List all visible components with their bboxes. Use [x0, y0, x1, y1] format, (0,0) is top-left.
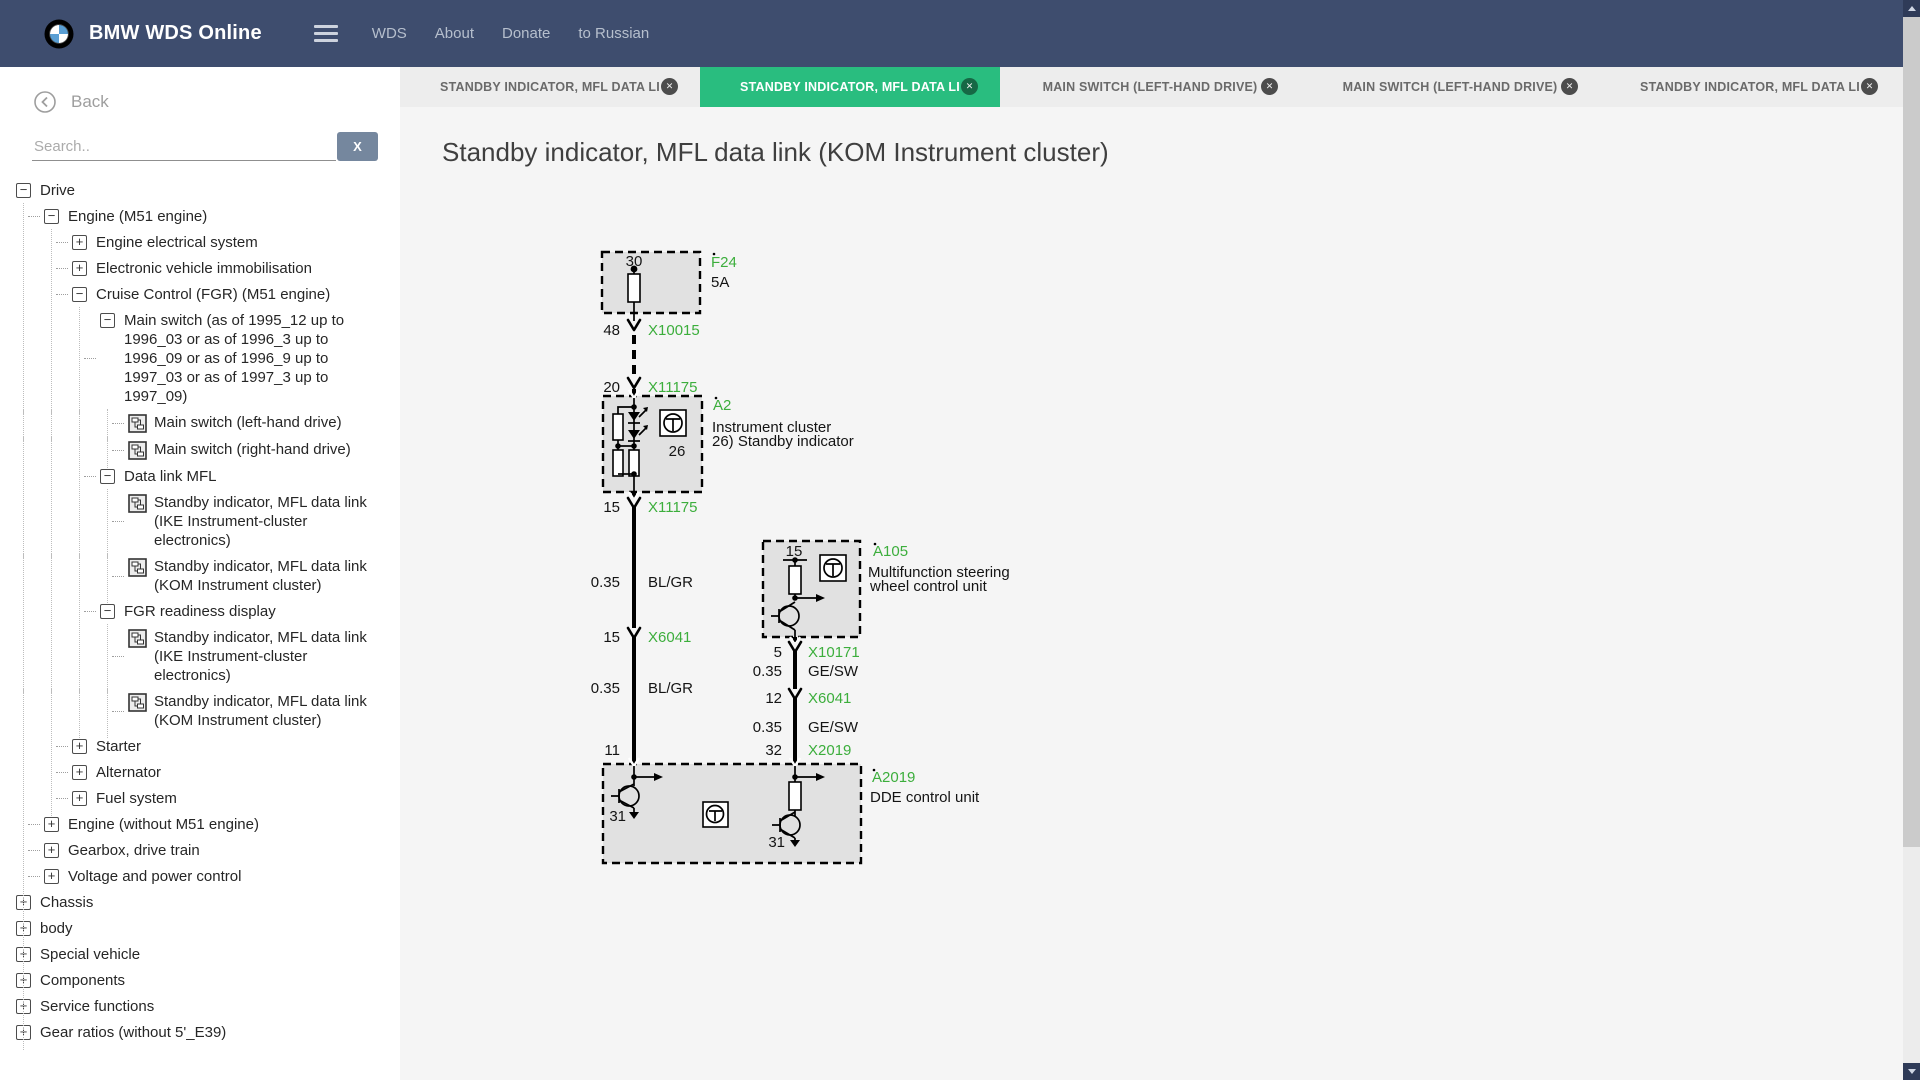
back-button[interactable]: Back: [34, 91, 400, 113]
pin-32-label: 32: [765, 742, 782, 759]
a2-name-line2: 26) Standby indicator: [712, 433, 854, 450]
pin-11-label: 11: [604, 742, 620, 759]
tree-guide-line: [23, 489, 24, 558]
a2019-id-label[interactable]: A2019: [872, 769, 915, 786]
nav-link-wds[interactable]: WDS: [372, 25, 407, 42]
pin-15-left-label: 15: [603, 499, 620, 516]
tree-item-label[interactable]: Fuel system: [96, 789, 400, 808]
nav-link-to-russian[interactable]: to Russian: [578, 25, 649, 42]
pin-5-label: 5: [774, 644, 782, 661]
tab-label: MAIN SWITCH (LEFT-HAND DRIVE): [1343, 80, 1558, 94]
wire1b-color-label: BL/GR: [648, 680, 693, 697]
tree-item-label[interactable]: Special vehicle: [40, 945, 400, 964]
tab[interactable]: MAIN SWITCH (LEFT-HAND DRIVE)✕: [1300, 67, 1600, 107]
tree-dots: [112, 521, 124, 522]
tree-item-label[interactable]: body: [40, 919, 400, 938]
tab-close-icon[interactable]: ✕: [1261, 78, 1278, 95]
sidebar: Back X −Drive−Engine (M51 engine)+Engine…: [0, 67, 400, 1080]
tree-guide-line: [107, 553, 108, 603]
wire1a-gauge-label: 0.35: [591, 574, 620, 591]
tree-item[interactable]: Main switch (right-hand drive): [0, 440, 400, 460]
bmw-logo-icon: [44, 19, 74, 49]
tree-guide-line: [79, 688, 80, 738]
connector-x10015-icon: [628, 320, 640, 330]
tree-item[interactable]: +Fuel system: [0, 789, 400, 808]
a2-id-label[interactable]: A2: [713, 397, 731, 414]
tree-dots: [56, 746, 68, 747]
wire2b-gauge-label: 0.35: [753, 719, 782, 736]
tree-item[interactable]: +Special vehicle: [0, 945, 400, 964]
connector-x6041-right-label[interactable]: X6041: [808, 690, 851, 707]
tree-dots: [28, 216, 40, 217]
tree-item[interactable]: +Components: [0, 971, 400, 990]
a2019-box[interactable]: [603, 764, 861, 863]
collapse-toggle-icon[interactable]: −: [100, 469, 115, 484]
tree-item-label[interactable]: Standby indicator, MFL data link (IKE In…: [154, 628, 400, 685]
tree-guide-line: [51, 489, 52, 558]
collapse-toggle-icon[interactable]: −: [16, 183, 31, 198]
top-navbar: BMW WDS Online WDSAboutDonateto Russian: [0, 0, 1920, 67]
a105-id-label[interactable]: A105: [873, 543, 908, 560]
a2019-name-label: DDE control unit: [870, 789, 980, 806]
tree-guide-line: [23, 553, 24, 603]
diagram-icon: [128, 629, 147, 648]
tree-item-label[interactable]: Standby indicator, MFL data link (KOM In…: [154, 692, 400, 730]
sidebar-tree: −Drive−Engine (M51 engine)+Engine electr…: [0, 181, 400, 1042]
connector-x10015-label[interactable]: X10015: [648, 322, 700, 339]
tree-guide-line: [23, 1019, 24, 1050]
search-input[interactable]: [32, 133, 336, 161]
tree-item[interactable]: Standby indicator, MFL data link (KOM In…: [0, 557, 400, 595]
pin-20-label: 20: [603, 379, 620, 396]
tree-dots: [56, 268, 68, 269]
tree-item-label[interactable]: Engine (without M51 engine): [68, 815, 400, 834]
tree-item[interactable]: +Service functions: [0, 997, 400, 1016]
tree-guide-line: [51, 307, 52, 414]
fuse-symbol: [628, 274, 640, 302]
vertical-scrollbar[interactable]: [1903, 0, 1920, 1080]
connector-x2019-label[interactable]: X2019: [808, 742, 851, 759]
tree-guide-line: [23, 307, 24, 414]
tree-item[interactable]: +Gear ratios (without 5'_E39): [0, 1023, 400, 1042]
pin-12-label: 12: [765, 690, 782, 707]
tree-item-label[interactable]: Cruise Control (FGR) (M51 engine): [96, 285, 400, 304]
tree-item-label[interactable]: Gear ratios (without 5'_E39): [40, 1023, 400, 1042]
tree-item[interactable]: +Alternator: [0, 763, 400, 782]
tree-guide-line: [51, 553, 52, 603]
tree-item-label[interactable]: FGR readiness display: [124, 602, 400, 621]
tree-item-label[interactable]: Components: [40, 971, 400, 990]
tree-item-label[interactable]: Main switch (as of 1995_12 up to 1996_03…: [124, 311, 400, 406]
nav-link-donate[interactable]: Donate: [502, 25, 550, 42]
tree-guide-line: [107, 436, 108, 468]
tree-item[interactable]: −Main switch (as of 1995_12 up to 1996_0…: [0, 311, 400, 406]
tree-item[interactable]: Main switch (left-hand drive): [0, 413, 400, 433]
search-clear-button[interactable]: X: [337, 132, 378, 161]
connector-x10171-label[interactable]: X10171: [808, 644, 860, 661]
tab[interactable]: MAIN SWITCH (LEFT-HAND DRIVE)✕: [1000, 67, 1300, 107]
tree-item-label[interactable]: Standby indicator, MFL data link (IKE In…: [154, 493, 400, 550]
ground-31-left-label: 31: [609, 808, 626, 825]
tree-item[interactable]: +Engine (without M51 engine): [0, 815, 400, 834]
search-bar: X: [32, 133, 378, 163]
nav-link-about[interactable]: About: [435, 25, 474, 42]
tree-item-label[interactable]: Data link MFL: [124, 467, 400, 486]
expand-toggle-icon[interactable]: +: [44, 843, 59, 858]
tree-dots: [28, 850, 40, 851]
tree-guide-line: [79, 307, 80, 414]
back-arrow-icon: [34, 91, 56, 113]
main-content: STANDBY INDICATOR, MFL DATA LI✕STANDBY I…: [400, 67, 1903, 1080]
expand-toggle-icon[interactable]: +: [72, 739, 87, 754]
tree-guide-line: [79, 489, 80, 558]
expand-toggle-icon[interactable]: +: [44, 817, 59, 832]
tree-item[interactable]: −FGR readiness display: [0, 602, 400, 621]
tab-bar: STANDBY INDICATOR, MFL DATA LI✕STANDBY I…: [400, 67, 1903, 107]
fuse-rating-label: 5A: [711, 274, 729, 291]
tree-item[interactable]: +Starter: [0, 737, 400, 756]
expand-toggle-icon[interactable]: +: [44, 869, 59, 884]
tree-dots: [28, 876, 40, 877]
tree-item-label[interactable]: Electronic vehicle immobilisation: [96, 259, 400, 278]
wiring-diagram: 30 F24 5A 48 X10015 20 X11175: [580, 240, 1060, 880]
tab-label: STANDBY INDICATOR, MFL DATA LI: [1640, 80, 1860, 94]
tree-dots: [112, 423, 124, 424]
diagram-icon: [128, 441, 147, 460]
collapse-toggle-icon[interactable]: −: [44, 209, 59, 224]
tree-item[interactable]: Standby indicator, MFL data link (IKE In…: [0, 628, 400, 685]
tree-item-label[interactable]: Voltage and power control: [68, 867, 400, 886]
wire1a-color-label: BL/GR: [648, 574, 693, 591]
wire1b-gauge-label: 0.35: [591, 680, 620, 697]
wire2b-color-label: GE/SW: [808, 719, 859, 736]
tab-label: MAIN SWITCH (LEFT-HAND DRIVE): [1043, 80, 1258, 94]
tree-item-label[interactable]: Starter: [96, 737, 400, 756]
nav-links: WDSAboutDonateto Russian: [372, 25, 649, 42]
tab[interactable]: STANDBY INDICATOR, MFL DATA LI✕: [1600, 67, 1900, 107]
tree-item[interactable]: +body: [0, 919, 400, 938]
scrollbar-thumb[interactable]: [1903, 17, 1920, 847]
tree-item[interactable]: Standby indicator, MFL data link (IKE In…: [0, 493, 400, 550]
tab[interactable]: STANDBY INDICATOR, MFL DATA LI✕: [400, 67, 700, 107]
tree-dots: [112, 656, 124, 657]
tree-guide-line: [51, 785, 52, 816]
scroll-up-icon[interactable]: [1903, 0, 1920, 17]
tree-dots: [112, 711, 124, 712]
app-title: BMW WDS Online: [89, 22, 262, 45]
tree-guide-line: [107, 688, 108, 738]
tree-guide-line: [23, 624, 24, 693]
page-title: Standby indicator, MFL data link (KOM In…: [442, 137, 1903, 168]
tree-dots: [84, 476, 96, 477]
expand-toggle-icon[interactable]: +: [72, 235, 87, 250]
pin-15-x6041-label: 15: [603, 629, 620, 646]
connector-x11175-bottom-label[interactable]: X11175: [648, 499, 698, 516]
tree-dots: [56, 772, 68, 773]
connector-x11175-top-icon: [628, 378, 640, 388]
connector-x6041-left-label[interactable]: X6041: [648, 629, 691, 646]
a2-pin-label: 26: [669, 443, 686, 460]
tab-close-icon[interactable]: ✕: [961, 78, 978, 95]
tree-dots: [56, 242, 68, 243]
tree-item-label[interactable]: Drive: [40, 181, 400, 200]
tree-item[interactable]: +Engine electrical system: [0, 233, 400, 252]
tree-item-label[interactable]: Standby indicator, MFL data link (KOM In…: [154, 557, 400, 595]
tree-dots: [28, 824, 40, 825]
tree-item-label[interactable]: Alternator: [96, 763, 400, 782]
tree-item[interactable]: −Data link MFL: [0, 467, 400, 486]
collapse-toggle-icon[interactable]: −: [100, 313, 115, 328]
tree-dots: [84, 611, 96, 612]
tree-guide-line: [79, 624, 80, 693]
tree-guide-line: [51, 688, 52, 738]
tree-guide-line: [51, 624, 52, 693]
tree-item-label[interactable]: Engine electrical system: [96, 233, 400, 252]
tree-item[interactable]: −Engine (M51 engine): [0, 207, 400, 226]
collapse-toggle-icon[interactable]: −: [100, 604, 115, 619]
tab-close-icon[interactable]: ✕: [1561, 78, 1578, 95]
tab-label: STANDBY INDICATOR, MFL DATA LI: [740, 80, 960, 94]
tree-item-label[interactable]: Gearbox, drive train: [68, 841, 400, 860]
hamburger-menu-icon[interactable]: [314, 25, 338, 42]
tree-item-label[interactable]: Main switch (left-hand drive): [154, 413, 400, 432]
wire2a-gauge-label: 0.35: [753, 663, 782, 680]
tree-guide-line: [107, 489, 108, 558]
expand-toggle-icon[interactable]: +: [72, 765, 87, 780]
tree-guide-line: [107, 624, 108, 693]
back-label: Back: [71, 92, 109, 112]
tab-close-icon[interactable]: ✕: [1861, 78, 1878, 95]
connector-x11175-top-label[interactable]: X11175: [648, 379, 698, 396]
tab-active[interactable]: STANDBY INDICATOR, MFL DATA LI✕: [700, 67, 1000, 107]
expand-toggle-icon[interactable]: +: [72, 261, 87, 276]
tree-item-label[interactable]: Service functions: [40, 997, 400, 1016]
a105-name-line2: wheel control unit: [869, 578, 988, 595]
tree-item[interactable]: −Drive: [0, 181, 400, 200]
tree-item[interactable]: Standby indicator, MFL data link (KOM In…: [0, 692, 400, 730]
tree-item[interactable]: +Voltage and power control: [0, 867, 400, 886]
tree-dots: [112, 576, 124, 577]
fuse-box[interactable]: [602, 252, 700, 313]
tab-label: STANDBY INDICATOR, MFL DATA LI: [440, 80, 660, 94]
diagram-icon: [128, 558, 147, 577]
tree-dots: [112, 450, 124, 451]
diagram-icon: [128, 414, 147, 433]
expand-toggle-icon[interactable]: +: [72, 791, 87, 806]
ground-31-right-label: 31: [768, 834, 785, 851]
tree-guide-line: [79, 553, 80, 603]
tree-item[interactable]: −Cruise Control (FGR) (M51 engine): [0, 285, 400, 304]
diagram-icon: [128, 693, 147, 712]
fuse-id-label[interactable]: F24: [711, 254, 737, 271]
tree-guide-line: [23, 688, 24, 738]
tree-item[interactable]: +Electronic vehicle immobilisation: [0, 259, 400, 278]
tree-dots: [56, 294, 68, 295]
tab-close-icon[interactable]: ✕: [661, 78, 678, 95]
diagram-icon: [128, 494, 147, 513]
scroll-down-icon[interactable]: [1903, 1063, 1920, 1080]
pin-48-label: 48: [603, 322, 620, 339]
tree-dots: [56, 798, 68, 799]
wire2a-color-label: GE/SW: [808, 663, 859, 680]
tree-item-label[interactable]: Engine (M51 engine): [68, 207, 400, 226]
tree-item[interactable]: +Chassis: [0, 893, 400, 912]
tree-item[interactable]: +Gearbox, drive train: [0, 841, 400, 860]
tree-item-label[interactable]: Main switch (right-hand drive): [154, 440, 400, 459]
collapse-toggle-icon[interactable]: −: [72, 287, 87, 302]
fuse-terminal-label: 30: [626, 253, 643, 270]
tree-item-label[interactable]: Chassis: [40, 893, 400, 912]
tree-dots: [84, 358, 96, 359]
